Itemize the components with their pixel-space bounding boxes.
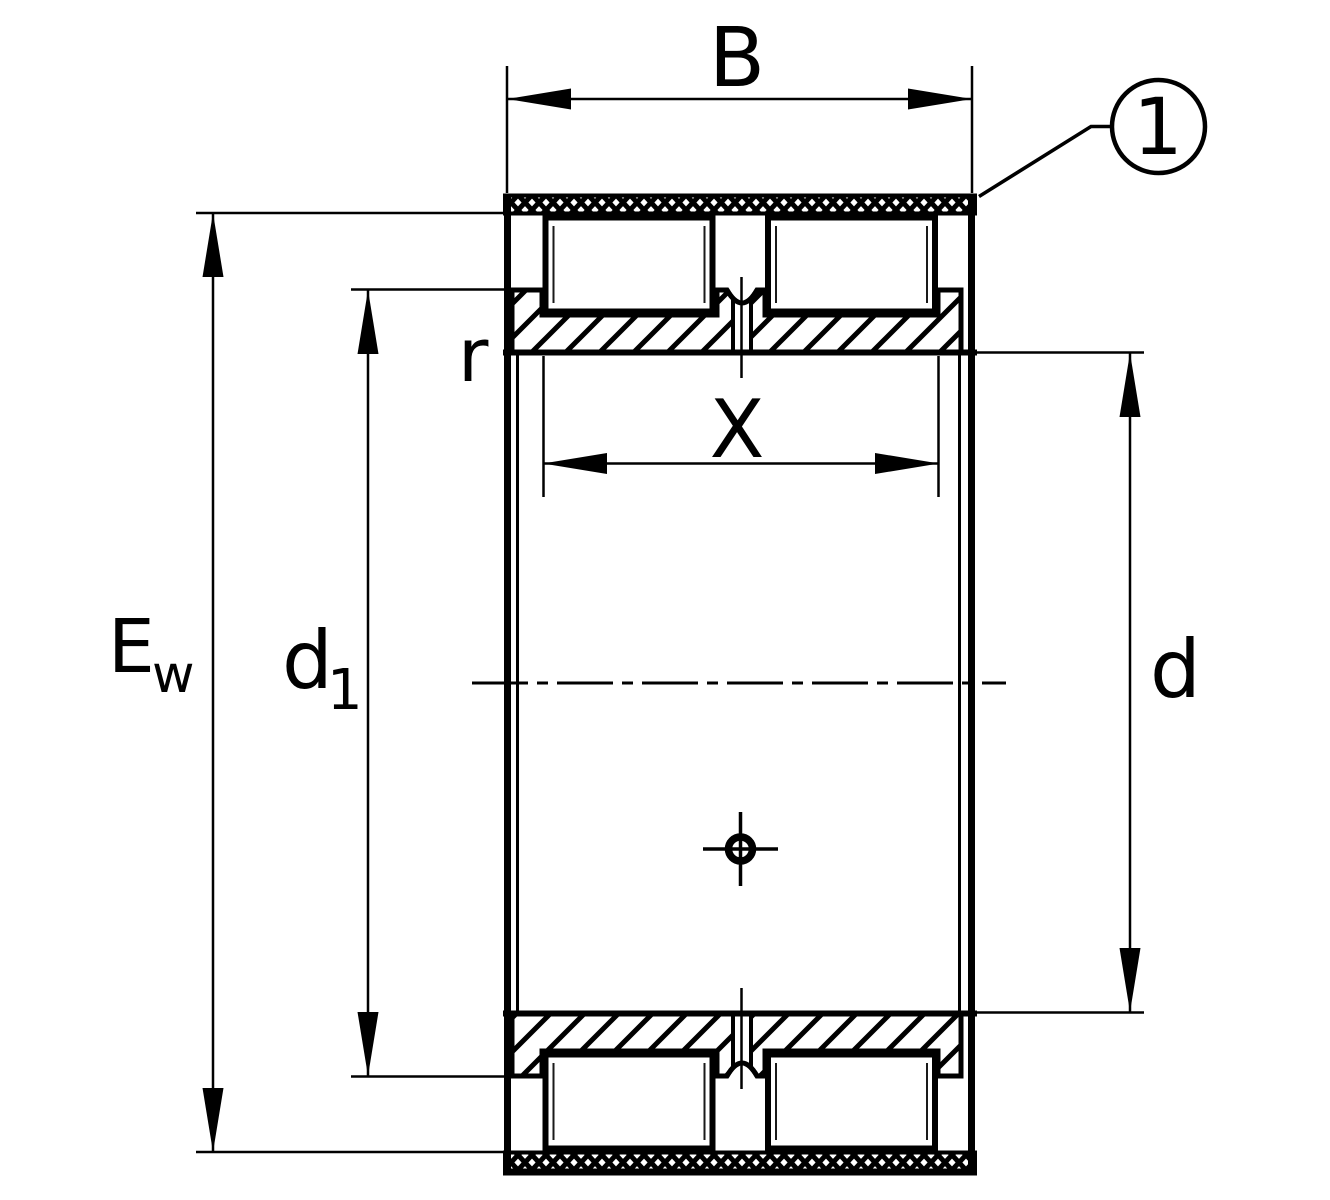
outer-ring-band-bottom [505,1153,975,1171]
label-d1-sub: 1 [327,658,363,723]
roller-top-right [768,218,935,312]
roller-bottom-right [768,1055,935,1149]
label-Ew-main: E [108,604,155,690]
label-X: X [710,383,765,476]
roller-top-left [546,218,713,312]
outer-ring-band-top [505,196,975,214]
label-r: r [458,313,489,399]
roller-bottom-left [546,1055,713,1149]
label-callout-1: 1 [1133,83,1183,173]
label-B: B [709,11,765,106]
label-d1-main: d [282,614,333,707]
label-Ew-sub: w [152,645,195,705]
bearing-section-drawing: B X r E w d 1 d 1 [0,0,1330,1200]
label-d: d [1150,623,1201,716]
